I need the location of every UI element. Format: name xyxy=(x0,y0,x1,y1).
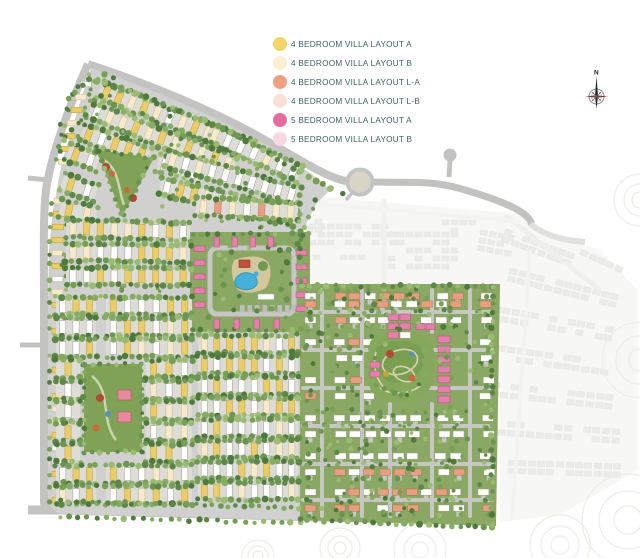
svg-text:N: N xyxy=(594,70,599,77)
svg-text:4 BEDROOM VILLA LAYOUT B: 4 BEDROOM VILLA LAYOUT B xyxy=(291,59,413,68)
svg-text:5 BEDROOM VILLA LAYOUT B: 5 BEDROOM VILLA LAYOUT B xyxy=(291,135,413,144)
svg-text:4 BEDROOM VILLA LAYOUT L-B: 4 BEDROOM VILLA LAYOUT L-B xyxy=(291,97,420,106)
svg-text:4 BEDROOM VILLA LAYOUT L-A: 4 BEDROOM VILLA LAYOUT L-A xyxy=(291,78,420,87)
svg-text:5 BEDROOM VILLA LAYOUT A: 5 BEDROOM VILLA LAYOUT A xyxy=(291,116,412,125)
svg-text:4 BEDROOM VILLA LAYOUT A: 4 BEDROOM VILLA LAYOUT A xyxy=(291,40,412,49)
